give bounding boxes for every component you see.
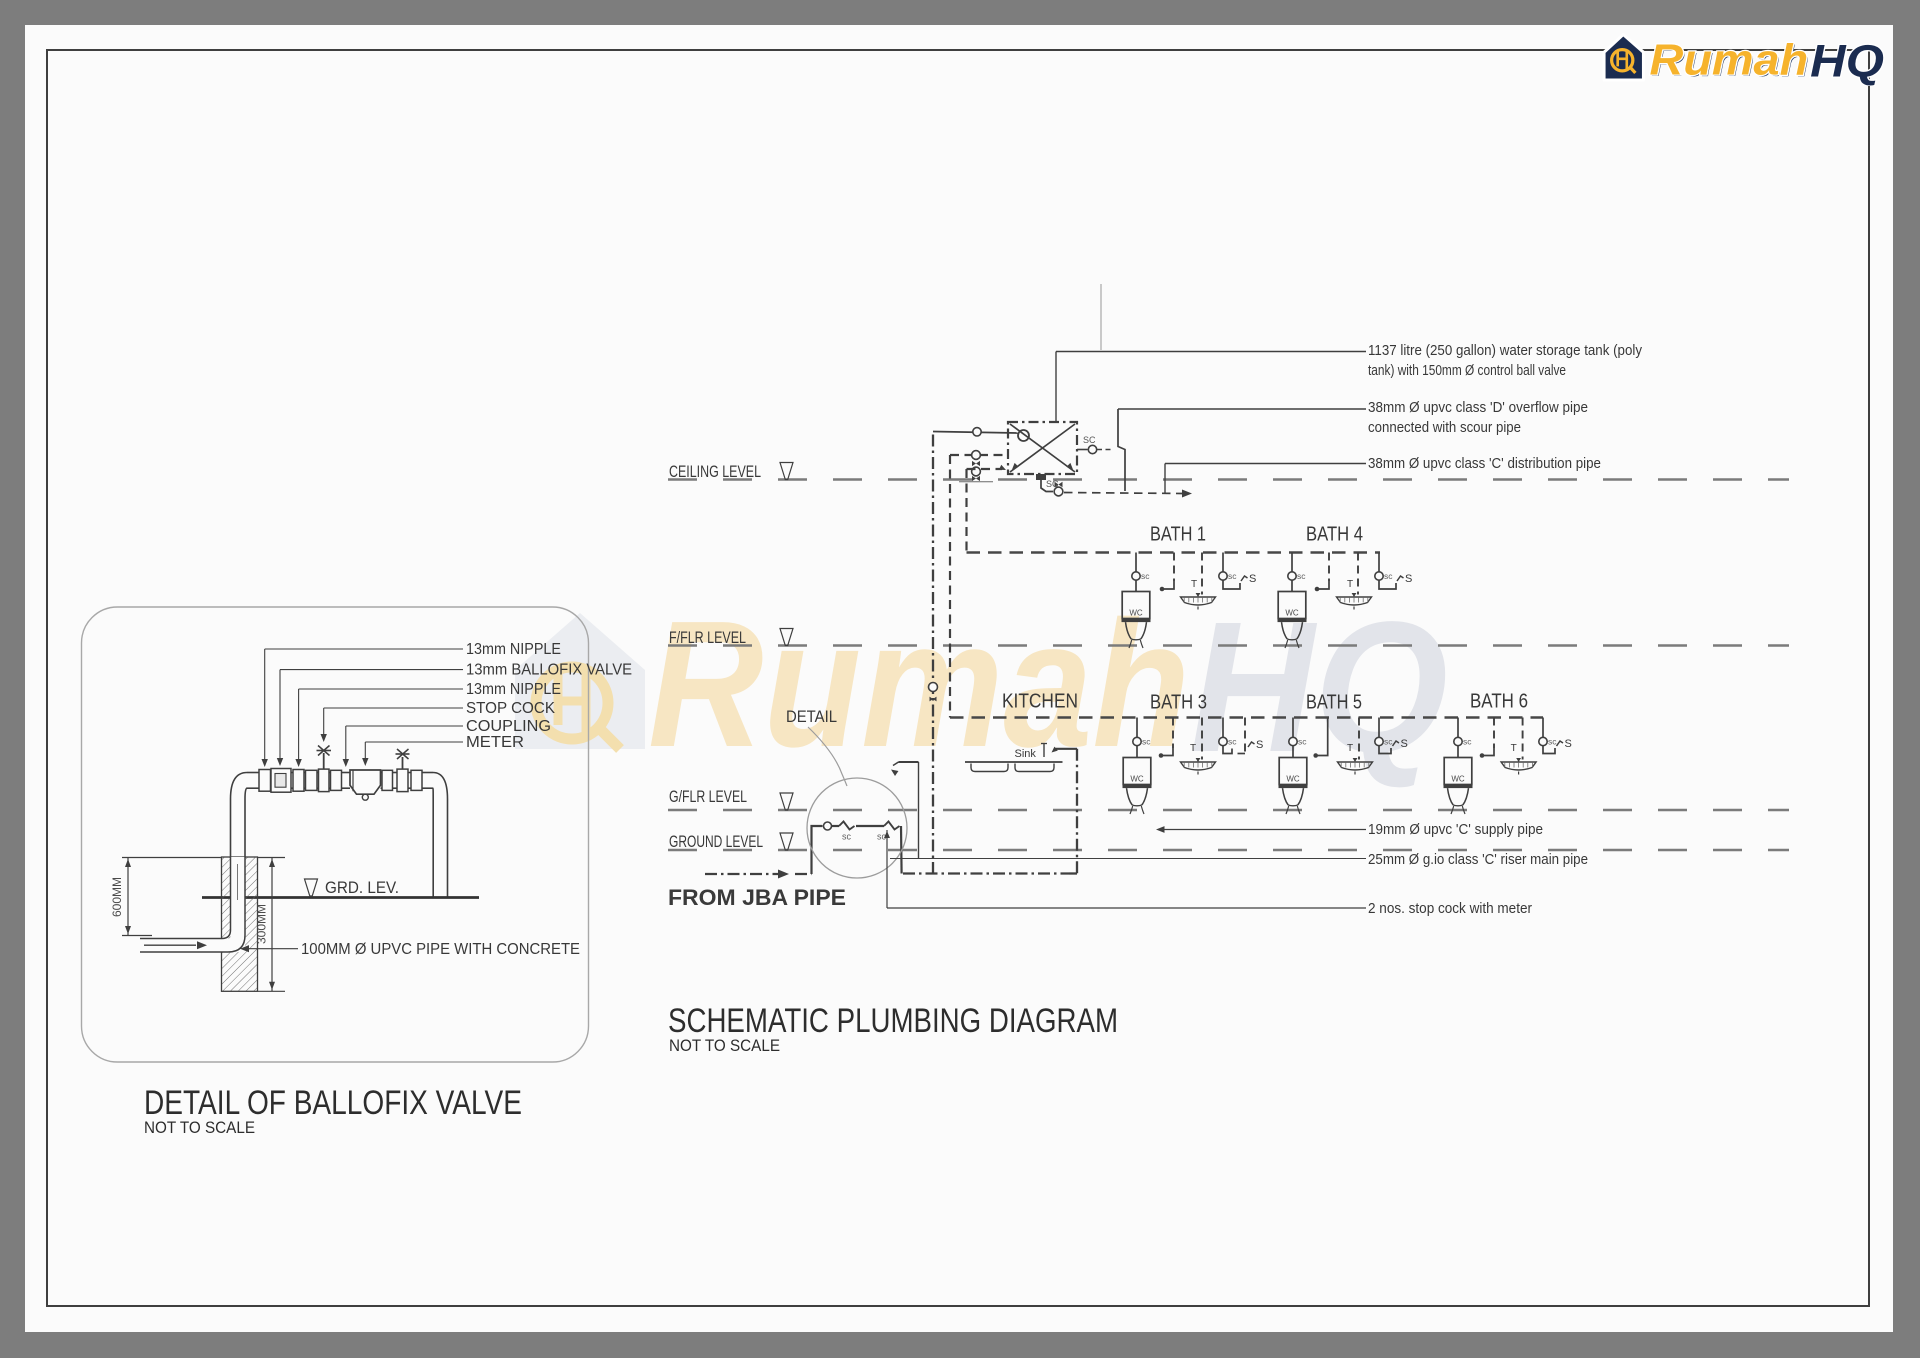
- svg-text:sc: sc: [1228, 737, 1237, 747]
- svg-text:T: T: [1347, 743, 1353, 754]
- svg-text:GRD. LEV.: GRD. LEV.: [325, 878, 399, 897]
- svg-text:METER: METER: [466, 734, 524, 751]
- svg-text:sc: sc: [1298, 737, 1307, 747]
- svg-text:BATH 1: BATH 1: [1150, 524, 1206, 546]
- svg-text:S: S: [1249, 573, 1256, 585]
- svg-text:S: S: [1565, 738, 1572, 750]
- svg-text:WC: WC: [1129, 609, 1143, 618]
- svg-text:2 nos. stop cock with meter: 2 nos. stop cock with meter: [1368, 901, 1532, 917]
- svg-text:BATH 6: BATH 6: [1470, 691, 1528, 713]
- svg-text:sc: sc: [1384, 571, 1393, 581]
- svg-text:F/FLR LEVEL: F/FLR LEVEL: [669, 628, 746, 647]
- svg-text:WC: WC: [1451, 775, 1465, 784]
- svg-text:T: T: [1190, 743, 1196, 754]
- svg-text:sc: sc: [1142, 737, 1151, 747]
- svg-text:G/FLR LEVEL: G/FLR LEVEL: [669, 787, 747, 806]
- svg-text:sc: sc: [1141, 571, 1150, 581]
- svg-text:38mm Ø upvc class 'C' distribu: 38mm Ø upvc class 'C' distribution pipe: [1368, 456, 1601, 472]
- svg-text:CEILING LEVEL: CEILING LEVEL: [669, 462, 761, 481]
- svg-text:19mm Ø upvc 'C' supply pipe: 19mm Ø upvc 'C' supply pipe: [1368, 822, 1543, 838]
- svg-text:sc: sc: [1297, 571, 1306, 581]
- svg-text:BATH 3: BATH 3: [1150, 692, 1207, 714]
- svg-text:sc: sc: [842, 832, 852, 842]
- svg-text:sc: sc: [1384, 737, 1393, 747]
- svg-text:S: S: [1256, 739, 1263, 751]
- svg-text:T: T: [1511, 743, 1517, 754]
- svg-text:connected with scour pipe: connected with scour pipe: [1368, 420, 1521, 436]
- svg-text:sc: sc: [1228, 571, 1237, 581]
- svg-text:STOP COCK: STOP COCK: [466, 700, 555, 717]
- svg-text:BATH 4: BATH 4: [1306, 524, 1363, 546]
- svg-text:sc: sc: [1463, 737, 1472, 747]
- svg-text:Sink: Sink: [1015, 748, 1037, 760]
- svg-text:1137 litre (250 gallon) water: 1137 litre (250 gallon) water storage ta…: [1368, 343, 1643, 359]
- svg-text:DETAIL: DETAIL: [786, 707, 837, 726]
- svg-text:WC: WC: [1286, 775, 1300, 784]
- svg-text:13mm NIPPLE: 13mm NIPPLE: [466, 681, 561, 698]
- svg-text:sc: sc: [1548, 737, 1557, 747]
- svg-text:SC: SC: [1046, 479, 1059, 489]
- svg-text:WC: WC: [1130, 775, 1144, 784]
- svg-text:T: T: [1347, 579, 1353, 590]
- svg-text:13mm BALLOFIX VALVE: 13mm BALLOFIX VALVE: [466, 662, 632, 679]
- svg-text:Rumah: Rumah: [1650, 36, 1809, 84]
- svg-text:13mm NIPPLE: 13mm NIPPLE: [466, 641, 561, 658]
- svg-text:T: T: [1191, 579, 1197, 590]
- svg-text:HQ: HQ: [1810, 35, 1884, 85]
- svg-text:BATH 5: BATH 5: [1306, 692, 1362, 714]
- svg-text:SCHEMATIC PLUMBING DIAGRAM: SCHEMATIC PLUMBING DIAGRAM: [668, 1002, 1118, 1040]
- svg-text:S: S: [1401, 738, 1408, 750]
- svg-text:38mm Ø upvc class 'D' overflow: 38mm Ø upvc class 'D' overflow pipe: [1368, 400, 1588, 416]
- svg-text:NOT TO SCALE: NOT TO SCALE: [144, 1118, 255, 1137]
- svg-text:tank) with 150mm Ø control bal: tank) with 150mm Ø control ball valve: [1368, 363, 1566, 379]
- svg-text:SC: SC: [1083, 435, 1096, 445]
- svg-text:WC: WC: [1285, 609, 1299, 618]
- svg-text:600MM: 600MM: [110, 877, 124, 917]
- svg-text:COUPLING: COUPLING: [466, 718, 551, 735]
- svg-text:FROM JBA PIPE: FROM JBA PIPE: [668, 885, 846, 910]
- svg-text:S: S: [1405, 573, 1412, 585]
- svg-text:100MM Ø UPVC PIPE WITH CONCRET: 100MM Ø UPVC PIPE WITH CONCRETE: [301, 941, 580, 958]
- svg-text:GROUND LEVEL: GROUND LEVEL: [669, 832, 763, 851]
- svg-text:300MM: 300MM: [255, 904, 269, 944]
- svg-text:KITCHEN: KITCHEN: [1002, 691, 1078, 713]
- svg-text:NOT TO SCALE: NOT TO SCALE: [669, 1036, 780, 1055]
- svg-text:25mm Ø g.io class 'C' riser ma: 25mm Ø g.io class 'C' riser main pipe: [1368, 852, 1588, 868]
- svg-text:DETAIL OF BALLOFIX VALVE: DETAIL OF BALLOFIX VALVE: [144, 1084, 522, 1122]
